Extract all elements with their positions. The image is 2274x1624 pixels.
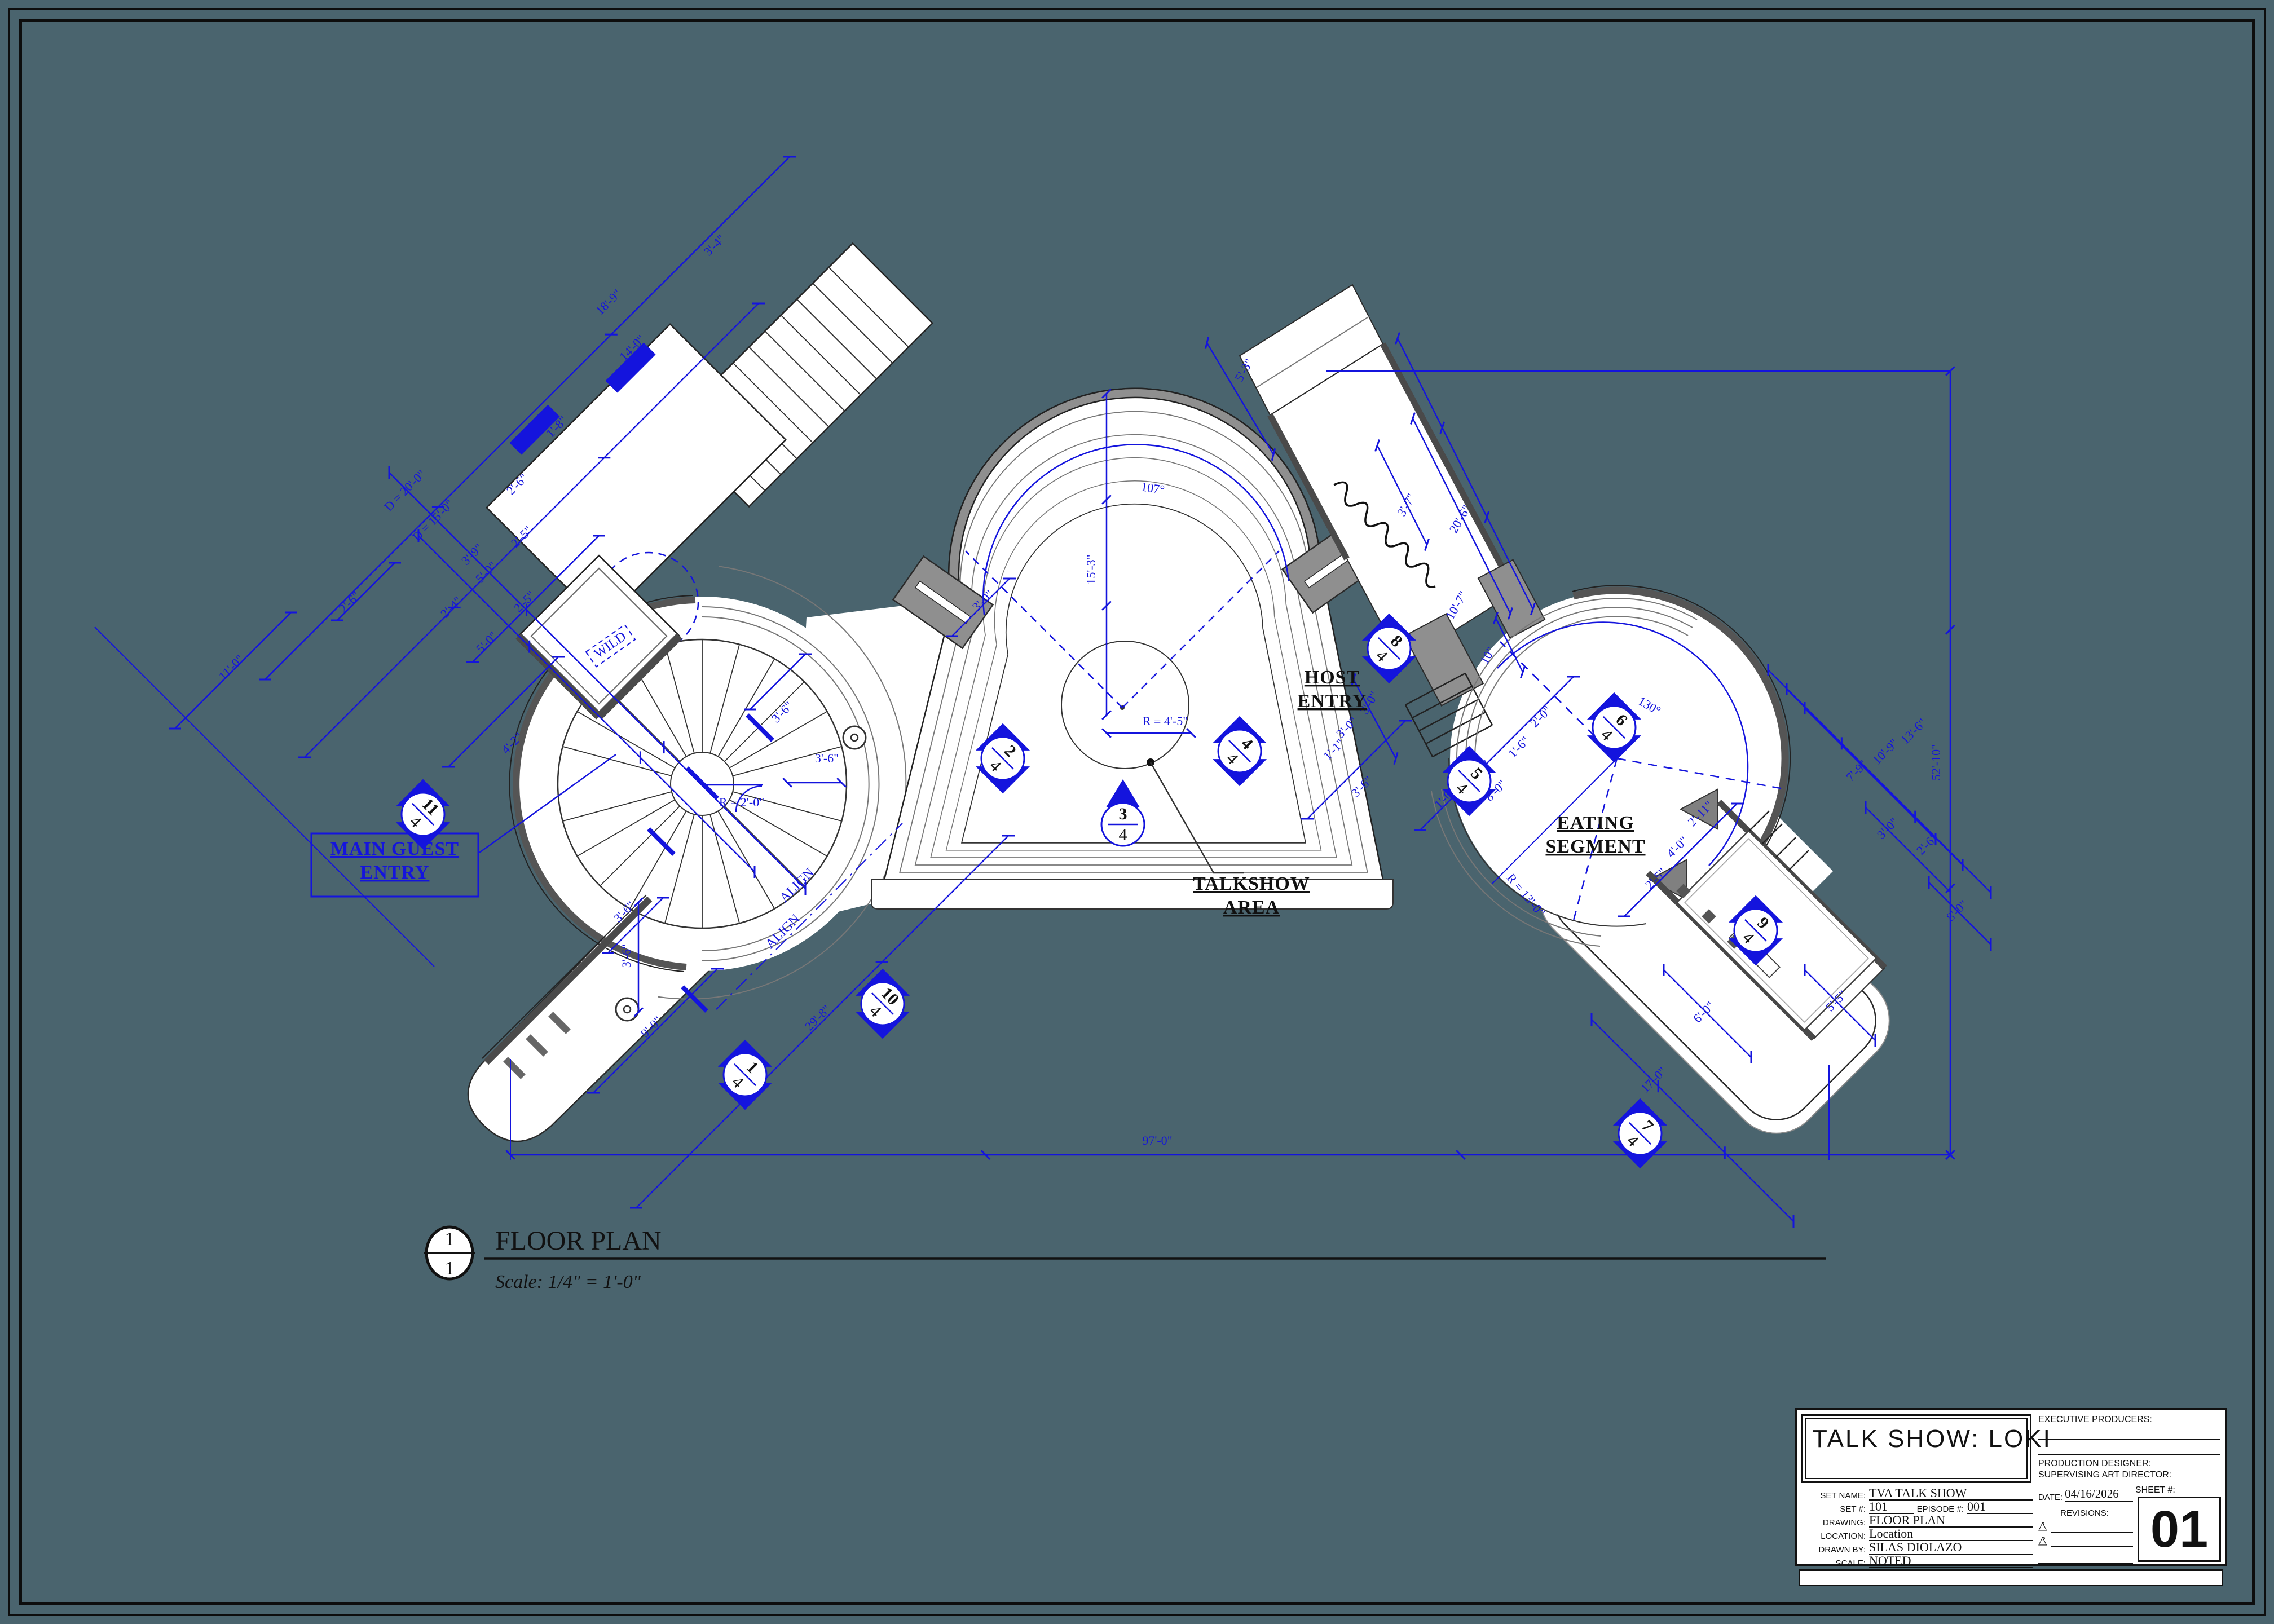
dim-label: 3'-9" [459, 541, 486, 568]
dim-label: 2'-6" [336, 589, 363, 616]
field-label: DRAWING: [1800, 1518, 1869, 1528]
revisions-label: REVISIONS: [2060, 1508, 2111, 1518]
dim-label: 5'-0" [473, 629, 500, 656]
dim-label: 13'-6" [1898, 716, 1929, 747]
drawing-sheet: 18'-9"3'-4"14'-0"1'-8"2'-6"2'-5"5'-0"D =… [0, 0, 2274, 1624]
dim-label: 15'-3" [1084, 554, 1098, 584]
dim-label: 18'-9" [593, 286, 624, 317]
set-no-value: 101 [1869, 1501, 1914, 1514]
area-label: HOST [1305, 667, 1360, 688]
drawing-scale: Scale: 1/4" = 1'-0" [495, 1272, 641, 1292]
field-label: SCALE: [1800, 1559, 1869, 1568]
title-block-strip [1799, 1569, 2223, 1586]
revision-triangle: △2 [2038, 1533, 2051, 1547]
show-title: TALK SHOW: LOKI [1812, 1425, 2052, 1453]
dim-label: 52'-10" [1929, 744, 1943, 780]
dim-label: R = 4'-5" [1143, 714, 1188, 728]
dim-label: D = 15'-0" [409, 497, 456, 544]
scale-value: NOTED [1869, 1555, 2033, 1568]
episode-value: 001 [1967, 1501, 2033, 1514]
dim-label: R = 2'-0" [719, 795, 764, 809]
section-marker: 74 [1605, 1098, 1675, 1168]
callout-number-bottom: 1 [445, 1258, 455, 1279]
executive-producers-label: EXECUTIVE PRODUCERS: [2038, 1414, 2223, 1426]
sheet-label: SHEET #: [2135, 1485, 2175, 1495]
dim-label: 2'-5" [511, 588, 538, 615]
date-label: DATE: [2038, 1493, 2065, 1502]
dim-label: 3'-0" [1874, 815, 1901, 842]
dim-label: 7'-9" [1843, 757, 1870, 784]
dim-label: 17'-0" [1638, 1064, 1669, 1095]
dim-label: 5'-0" [473, 559, 500, 586]
title-block: TALK SHOW: LOKI EXECUTIVE PRODUCERS: PRO… [1795, 1408, 2227, 1587]
dim-label: 97'-0" [1142, 1133, 1172, 1148]
area-label: EATING [1557, 813, 1634, 833]
title-block-fields: SET NAME:TVA TALK SHOW SET #: 101 EPISOD… [1800, 1488, 2033, 1569]
area-label: AREA [1223, 897, 1280, 918]
marker-number-bottom: 4 [1119, 826, 1127, 844]
production-designer-label: PRODUCTION DESIGNER: [2038, 1458, 2223, 1469]
drawing-value: FLOOR PLAN [1869, 1514, 2033, 1528]
producers-section: EXECUTIVE PRODUCERS: PRODUCTION DESIGNER… [2038, 1414, 2223, 1481]
sheet-number-box: 01 [2138, 1497, 2221, 1562]
supervising-label: SUPERVISING ART DIRECTOR: [2038, 1469, 2223, 1481]
field-label: DRAWN BY: [1800, 1545, 1869, 1555]
area-label: MAIN GUEST [330, 839, 459, 859]
dim-tick [1205, 337, 1208, 348]
field-label: LOCATION: [1800, 1532, 1869, 1541]
producer-line [2038, 1440, 2220, 1455]
dimension-line [1866, 807, 1950, 892]
set-name-value: TVA TALK SHOW [1869, 1487, 2033, 1501]
dim-label: 3'-4" [701, 232, 728, 259]
dim-label: 29'-8" [802, 1002, 833, 1033]
area-label: TALKSHOW [1193, 873, 1310, 894]
section-marker: 104 [848, 969, 918, 1039]
floor-plan-drawing: 18'-9"3'-4"14'-0"1'-8"2'-6"2'-5"5'-0"D =… [0, 0, 2274, 1624]
area-label: ENTRY [1298, 691, 1367, 712]
revision-triangle: △1 [2038, 1519, 2051, 1533]
dim-label: 3'-6" [619, 944, 633, 968]
title-block-main: TALK SHOW: LOKI EXECUTIVE PRODUCERS: PRO… [1795, 1408, 2227, 1566]
drawn-by-value: SILAS DIOLAZO [1869, 1541, 2033, 1555]
drawing-title: FLOOR PLAN [495, 1226, 662, 1256]
producer-line [2038, 1426, 2220, 1440]
show-title-box: TALK SHOW: LOKI [1801, 1414, 2031, 1483]
area-label: ENTRY [360, 862, 430, 883]
dim-tick [1394, 752, 1398, 764]
dim-label: 11'-0" [215, 652, 246, 683]
dim-label: 10'-9" [1870, 736, 1901, 767]
drawing-title-callout: 1 1 FLOOR PLAN Scale: 1/4" = 1'-0" [424, 1226, 1826, 1292]
date-revisions-section: DATE:04/16/2026 REVISIONS: △1 △2 [2038, 1488, 2133, 1564]
marker-number-top: 3 [1119, 805, 1127, 823]
column-donut [843, 726, 866, 749]
sheet-number-section: SHEET #: 01 [2135, 1485, 2224, 1564]
column-donut [616, 998, 638, 1021]
sheet-number: 01 [2150, 1500, 2208, 1559]
field-label: SET NAME: [1800, 1491, 1869, 1501]
date-value: 04/16/2026 [2065, 1487, 2133, 1502]
callout-number-top: 1 [445, 1229, 455, 1250]
area-label: SEGMENT [1545, 836, 1645, 857]
dim-label: 3'-6" [815, 751, 839, 765]
dim-label: 2'-4" [438, 594, 465, 621]
location-value: Location [1869, 1528, 2033, 1541]
field-label: SET #: [1800, 1504, 1869, 1514]
